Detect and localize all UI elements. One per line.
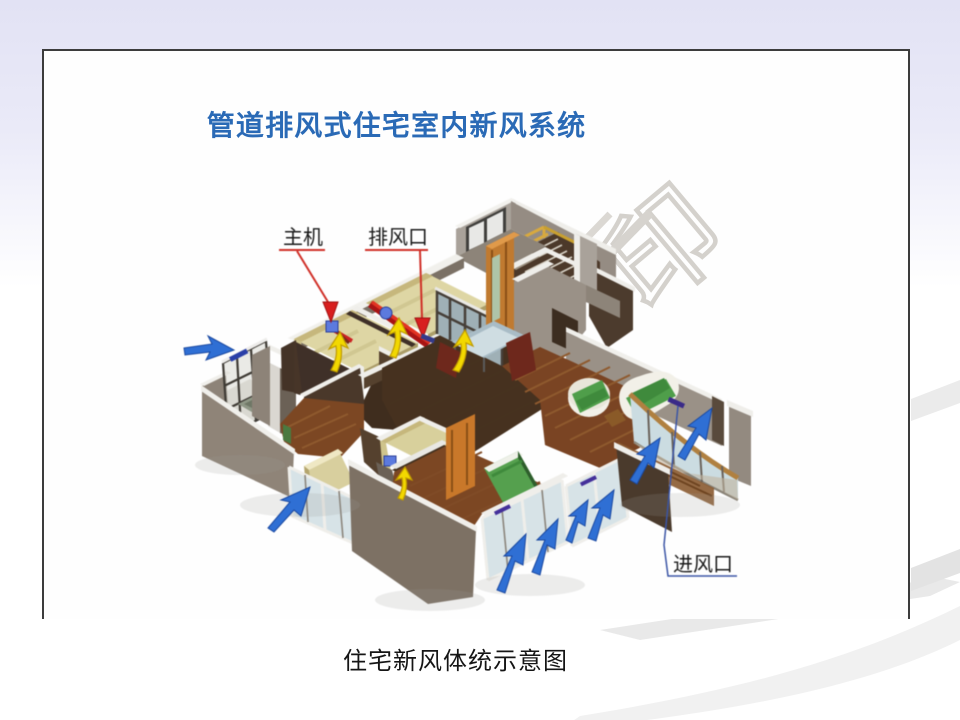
svg-text:主机: 主机 [283, 226, 323, 249]
svg-text:进风口: 进风口 [673, 553, 733, 576]
svg-text:排风口: 排风口 [368, 226, 428, 249]
